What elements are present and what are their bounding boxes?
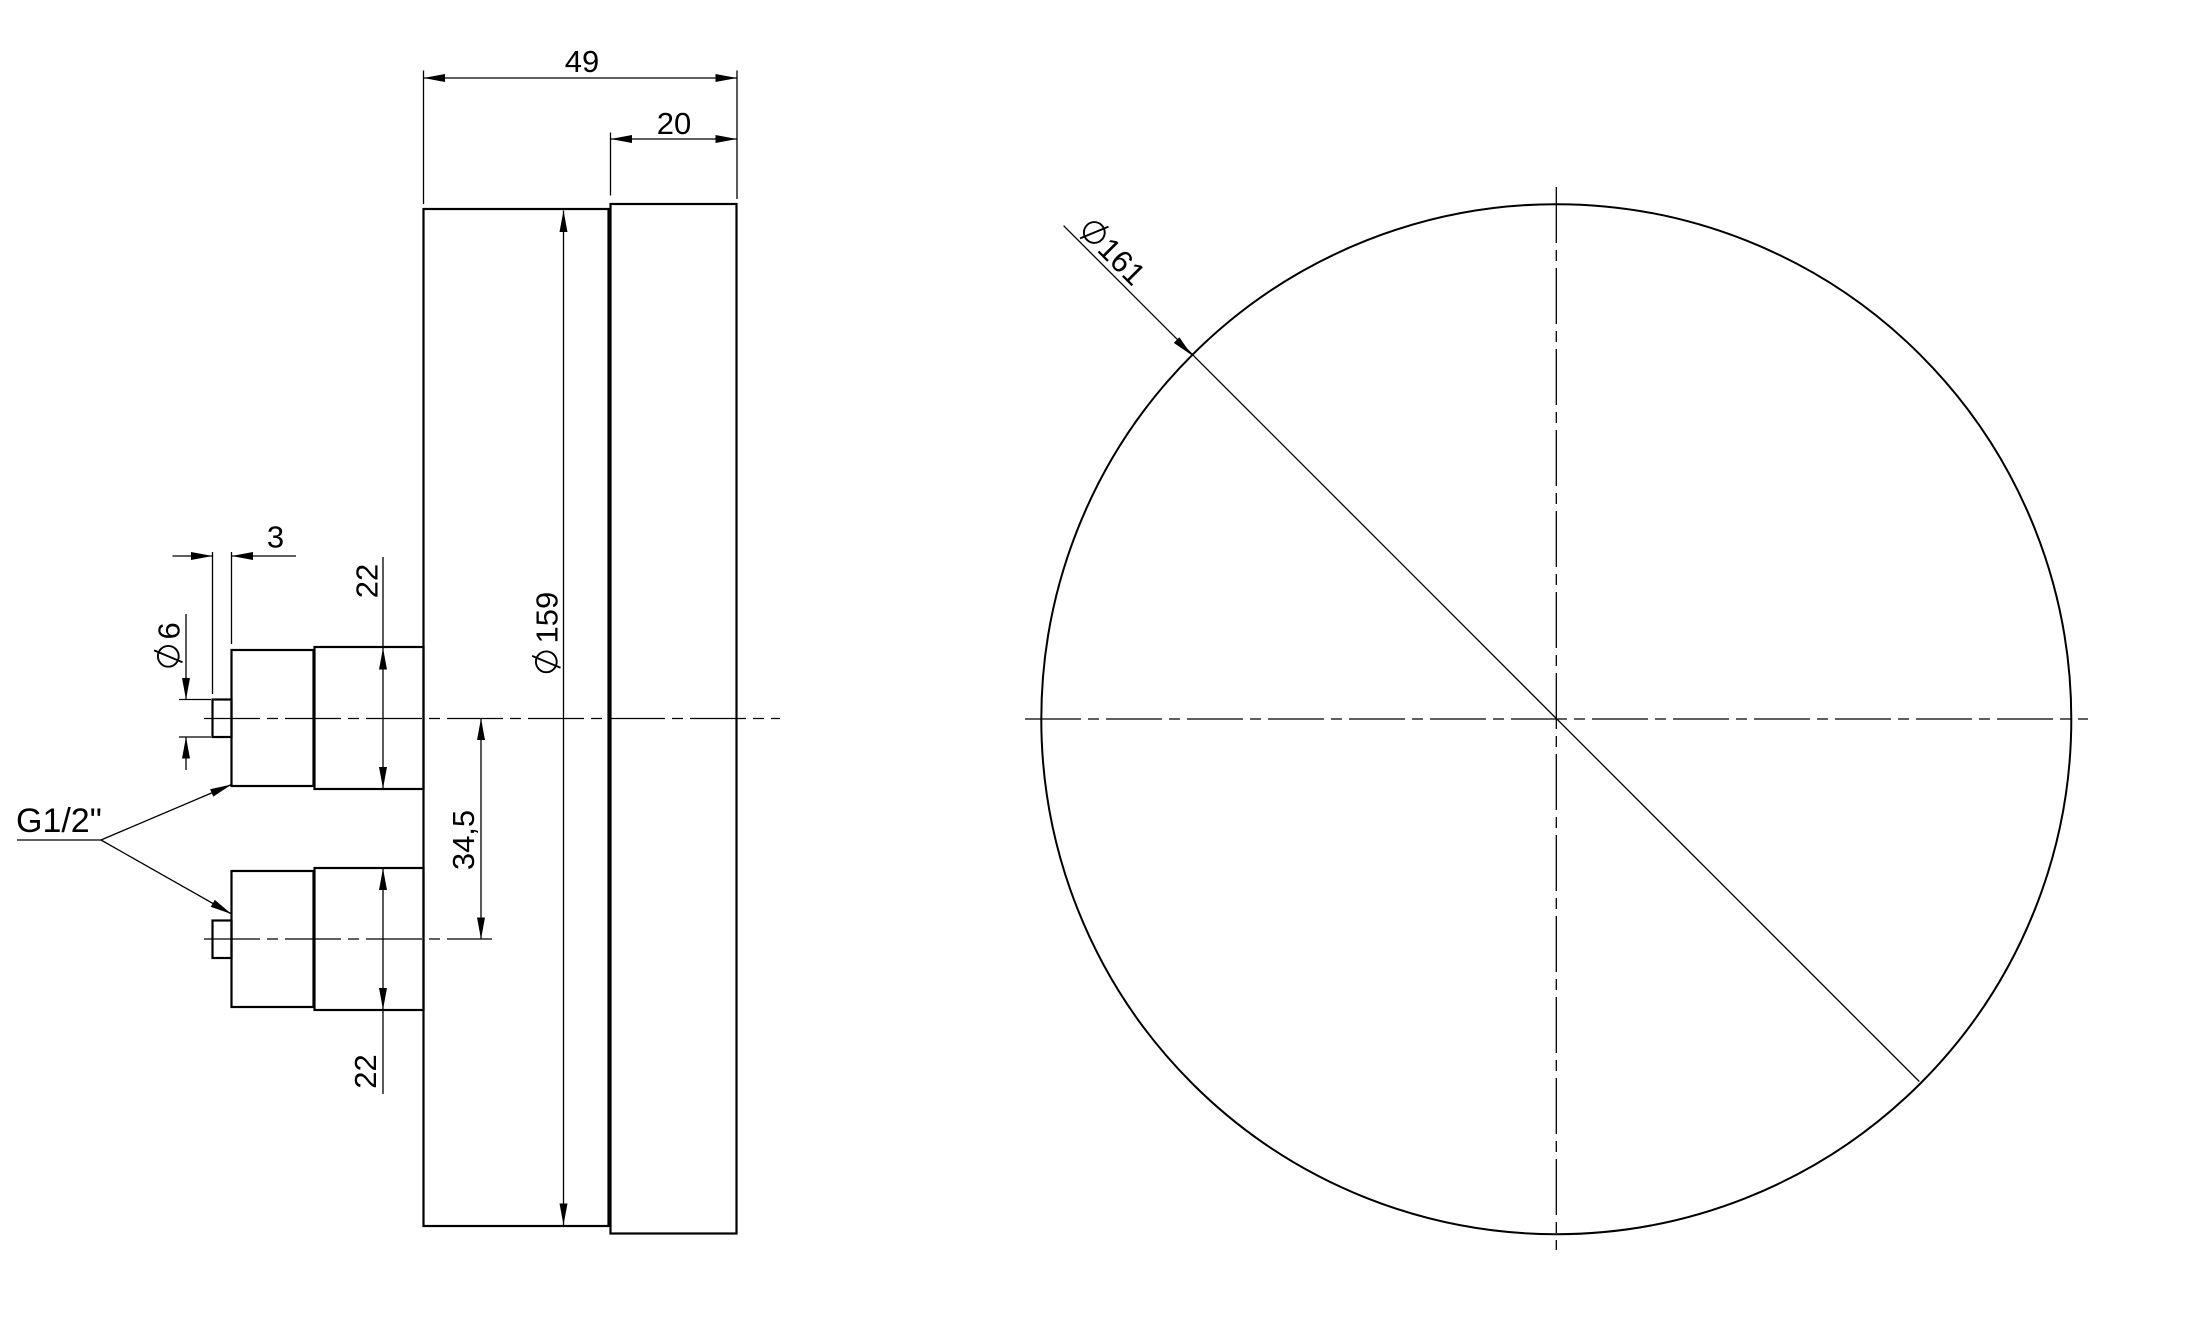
svg-text:22: 22 <box>348 1054 383 1088</box>
svg-text:34,5: 34,5 <box>446 810 481 870</box>
svg-text:20: 20 <box>657 106 691 141</box>
svg-text:159: 159 <box>530 592 565 644</box>
svg-text:49: 49 <box>565 44 599 79</box>
svg-text:6: 6 <box>152 622 187 639</box>
svg-text:G1/2": G1/2" <box>16 802 102 840</box>
svg-text:22: 22 <box>350 564 385 598</box>
svg-text:3: 3 <box>267 520 284 555</box>
